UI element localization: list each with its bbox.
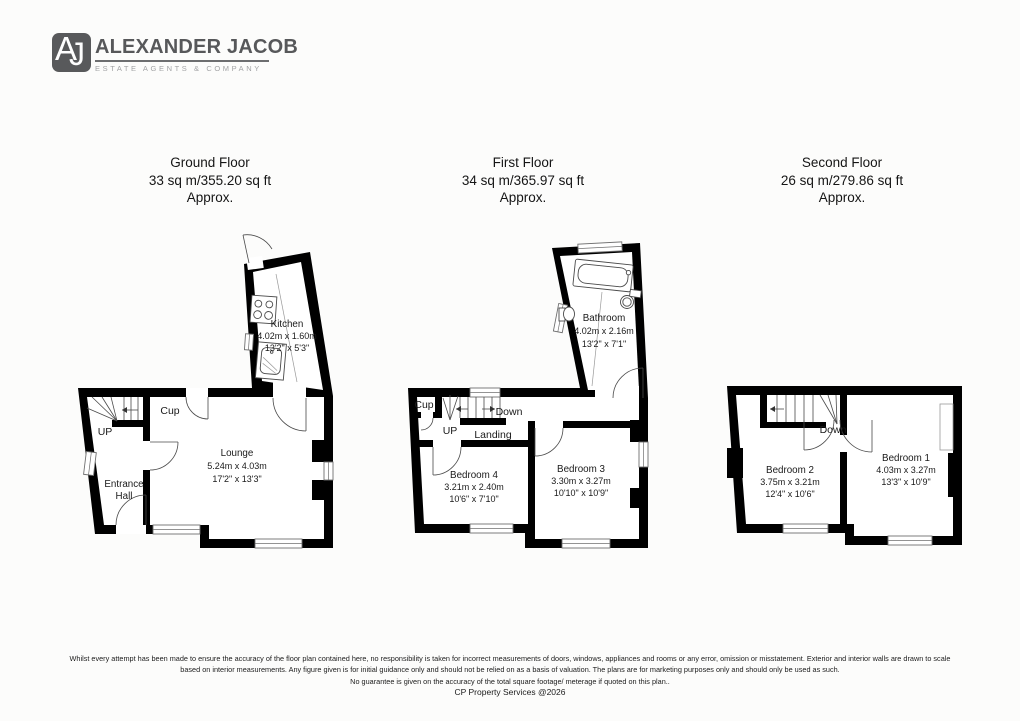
bedroom3-door-opening — [535, 421, 563, 428]
bedroom1-imperial: 13'3" x 10'9" — [881, 477, 930, 487]
second-floor-title: Second Floor 26 sq m/279.86 sq ft Approx… — [702, 154, 982, 207]
entrance-bottom-window — [153, 525, 200, 534]
lounge-metric: 5.24m x 4.03m — [207, 461, 267, 471]
first-landing-label: Landing — [474, 429, 512, 441]
bathroom-label: Bathroom — [583, 313, 625, 324]
bedroom1-label: Bedroom 1 — [882, 453, 930, 464]
cup-door-opening-ff — [421, 412, 433, 418]
brand-monogram-badge: A J — [52, 33, 91, 72]
bedroom3-chimney-upper — [630, 420, 639, 442]
cup-side-wall — [435, 397, 442, 418]
ground-floor-title: Ground Floor 33 sq m/355.20 sq ft Approx… — [70, 154, 350, 207]
first-up-label: UP — [443, 425, 458, 437]
entrance-hall-label-line1: Entrance — [104, 479, 144, 490]
ground-cup-label: Cup — [160, 405, 179, 417]
bathtub-icon — [573, 259, 634, 292]
second-floor-title-approx: Approx. — [702, 189, 982, 207]
bedroom4-imperial: 10'6" x 7'10" — [449, 494, 498, 504]
bedroom3-bedroom4-wall — [528, 421, 535, 539]
first-down-label: Down — [496, 406, 523, 418]
entrance-left-window — [84, 451, 97, 475]
bedroom2-bottom-window — [783, 524, 828, 533]
kitchen-door-opening — [273, 380, 306, 398]
bedroom4-door-opening — [433, 440, 461, 447]
ground-floor-title-approx: Approx. — [70, 189, 350, 207]
ground-floor-plan: Kitchen 4.02m x 1.60m 13'2" x 5'3" Loung… — [78, 230, 348, 565]
bedroom2-imperial: 12'4" x 10'6" — [765, 489, 814, 499]
brand-text: ALEXANDER JACOB ESTATE AGENTS & COMPANY — [95, 33, 298, 73]
first-floor-title-name: First Floor — [383, 154, 663, 172]
ground-up-label: UP — [98, 426, 113, 438]
monogram-letter-j: J — [69, 36, 85, 73]
basin-icon — [559, 307, 575, 321]
cup-door-opening — [186, 388, 208, 397]
disclaimer-line-1: Whilst every attempt has been made to en… — [0, 653, 1020, 664]
bedroom-divider-lower — [840, 452, 847, 530]
first-floor-plan: Bathroom 4.02m x 2.16m 13'2" x 7'1" Bedr… — [398, 228, 658, 573]
entrance-hall-label-line2: Hall — [116, 491, 133, 502]
bedroom3-metric: 3.30m x 3.27m — [551, 476, 611, 486]
credit-line: CP Property Services @2026 — [0, 687, 1020, 698]
lounge-label: Lounge — [221, 448, 254, 459]
bedroom1-metric: 4.03m x 3.27m — [876, 465, 936, 475]
bedroom3-imperial: 10'10" x 10'9" — [554, 488, 608, 498]
second-floor-title-area: 26 sq m/279.86 sq ft — [702, 172, 982, 190]
second-floor-title-name: Second Floor — [702, 154, 982, 172]
bedroom3-label: Bedroom 3 — [557, 464, 605, 475]
bedroom3-bottom-window — [562, 539, 610, 548]
lounge-right-window — [324, 462, 333, 480]
disclaimer: Whilst every attempt has been made to en… — [0, 653, 1020, 698]
bathroom-imperial: 13'2" x 7'1" — [582, 339, 626, 349]
kitchen-left-window — [244, 334, 253, 351]
first-cup-label: Cup — [414, 399, 433, 411]
bedroom3-chimney-lower — [630, 488, 639, 508]
brand-tagline: ESTATE AGENTS & COMPANY — [95, 64, 298, 73]
bedroom3-right-window — [639, 442, 648, 467]
bedroom4-metric: 3.21m x 2.40m — [444, 482, 504, 492]
brand-logo: A J ALEXANDER JACOB ESTATE AGENTS & COMP… — [52, 33, 298, 73]
second-floor-plan: Bedroom 2 3.75m x 3.21m 12'4" x 10'6" Be… — [720, 380, 992, 565]
first-floor-title-approx: Approx. — [383, 189, 663, 207]
lounge-imperial: 17'2" x 13'3" — [212, 474, 261, 484]
bathroom-top-window — [578, 242, 622, 253]
lounge-chimney-lower — [312, 480, 324, 500]
landing-bedroom4-wall — [413, 440, 528, 447]
lounge-bottom-window — [255, 539, 302, 548]
bathroom-metric: 4.02m x 2.16m — [574, 326, 634, 336]
bedroom1-chimney — [948, 453, 962, 497]
stairwell-bottom-wall — [762, 422, 826, 428]
first-floor-title-area: 34 sq m/365.97 sq ft — [383, 172, 663, 190]
bedroom4-bottom-window — [470, 524, 513, 533]
second-down-label: Down — [820, 424, 847, 436]
kitchen-imperial: 13'2" x 5'3" — [265, 343, 309, 353]
hall-lounge-wall-lower — [143, 470, 150, 528]
entrance-door-opening — [116, 525, 146, 534]
bathroom-door-opening — [595, 386, 639, 398]
bedroom2-label: Bedroom 2 — [766, 465, 814, 476]
disclaimer-line-3: No guarantee is given on the accuracy of… — [0, 676, 1020, 687]
brand-divider-rule — [95, 60, 269, 62]
stairs-top-window — [470, 388, 500, 397]
ground-floor-title-name: Ground Floor — [70, 154, 350, 172]
bedroom1-bottom-window — [888, 536, 932, 545]
ground-floor-title-area: 33 sq m/355.20 sq ft — [70, 172, 350, 190]
kitchen-label: Kitchen — [271, 319, 304, 330]
brand-name: ALEXANDER JACOB — [95, 36, 298, 59]
kitchen-metric: 4.02m x 1.60m — [257, 331, 317, 341]
disclaimer-line-2: based on interior measurements. Any figu… — [0, 664, 1020, 675]
bedroom1-cupboard — [940, 404, 953, 450]
bedroom2-wall-notch — [727, 448, 743, 478]
first-floor-title: First Floor 34 sq m/365.97 sq ft Approx. — [383, 154, 663, 207]
lounge-chimney-upper — [312, 440, 324, 462]
stairs-under-wall — [460, 418, 506, 425]
hall-lounge-wall-upper — [143, 397, 150, 441]
floorplan-page: A J ALEXANDER JACOB ESTATE AGENTS & COMP… — [0, 0, 1020, 721]
bedroom2-metric: 3.75m x 3.21m — [760, 477, 820, 487]
bedroom4-label: Bedroom 4 — [450, 470, 498, 481]
ground-main-rooms — [87, 397, 324, 539]
